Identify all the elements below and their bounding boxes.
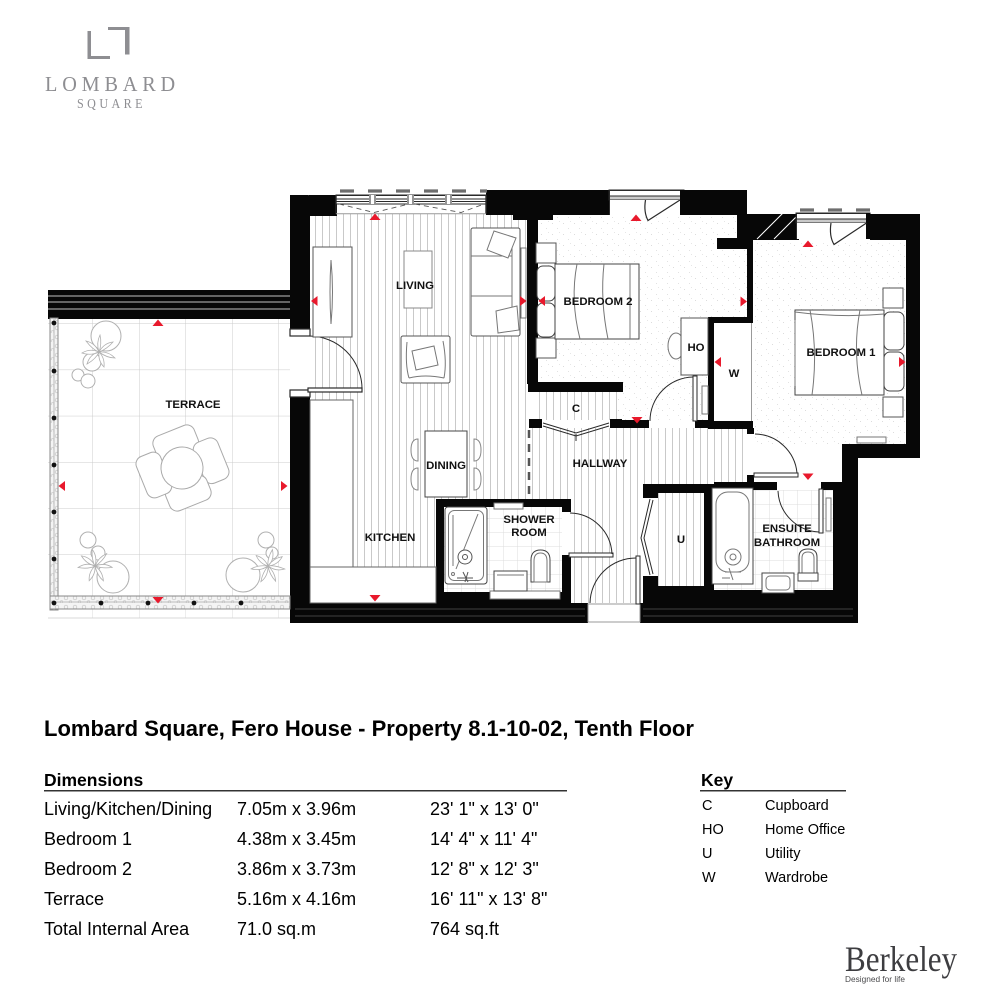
svg-text:LIVING: LIVING xyxy=(396,280,434,292)
svg-text:W: W xyxy=(702,870,716,886)
svg-text:BEDROOM 1: BEDROOM 1 xyxy=(807,347,877,359)
svg-text:SHOWER: SHOWER xyxy=(503,514,554,526)
svg-text:LOMBARD: LOMBARD xyxy=(45,72,180,96)
svg-text:BEDROOM 2: BEDROOM 2 xyxy=(564,296,633,308)
svg-text:23' 1" x 13' 0": 23' 1" x 13' 0" xyxy=(430,799,539,819)
svg-text:7.05m x 3.96m: 7.05m x 3.96m xyxy=(237,799,356,819)
svg-text:Terrace: Terrace xyxy=(44,889,104,909)
svg-text:5.16m x 4.16m: 5.16m x 4.16m xyxy=(237,889,356,909)
svg-text:16' 11" x 13' 8": 16' 11" x 13' 8" xyxy=(430,889,547,909)
svg-text:HALLWAY: HALLWAY xyxy=(573,458,628,470)
svg-text:U: U xyxy=(677,534,685,546)
svg-text:Living/Kitchen/Dining: Living/Kitchen/Dining xyxy=(44,799,212,819)
svg-text:Bedroom 2: Bedroom 2 xyxy=(44,859,132,879)
svg-text:BATHROOM: BATHROOM xyxy=(754,537,820,549)
svg-text:W: W xyxy=(729,368,740,380)
svg-text:ENSUITE: ENSUITE xyxy=(762,523,812,535)
svg-text:Berkeley: Berkeley xyxy=(845,939,957,979)
svg-text:71.0 sq.m: 71.0 sq.m xyxy=(237,919,316,939)
svg-text:Lombard Square, Fero House - P: Lombard Square, Fero House - Property 8.… xyxy=(44,716,694,741)
svg-text:Bedroom 1: Bedroom 1 xyxy=(44,829,132,849)
svg-text:HO: HO xyxy=(702,822,724,838)
svg-text:Dimensions: Dimensions xyxy=(44,770,143,790)
svg-text:C: C xyxy=(702,798,712,814)
svg-text:Key: Key xyxy=(701,770,733,790)
svg-text:SQUARE: SQUARE xyxy=(77,97,146,112)
svg-text:TERRACE: TERRACE xyxy=(165,399,220,411)
svg-text:Utility: Utility xyxy=(765,846,801,862)
svg-text:3.86m x 3.73m: 3.86m x 3.73m xyxy=(237,859,356,879)
svg-text:Total Internal Area: Total Internal Area xyxy=(44,919,190,939)
svg-text:U: U xyxy=(702,846,712,862)
svg-text:KITCHEN: KITCHEN xyxy=(365,532,416,544)
svg-text:Cupboard: Cupboard xyxy=(765,798,829,814)
svg-text:C: C xyxy=(572,403,580,415)
svg-text:764 sq.ft: 764 sq.ft xyxy=(430,919,499,939)
svg-text:Home Office: Home Office xyxy=(765,822,845,838)
svg-text:Wardrobe: Wardrobe xyxy=(765,870,828,886)
svg-text:Designed for life: Designed for life xyxy=(845,974,905,984)
svg-text:14' 4" x 11' 4": 14' 4" x 11' 4" xyxy=(430,829,537,849)
svg-text:ROOM: ROOM xyxy=(511,527,546,539)
svg-text:DINING: DINING xyxy=(426,460,466,472)
svg-text:12' 8" x 12' 3": 12' 8" x 12' 3" xyxy=(430,859,539,879)
svg-text:HO: HO xyxy=(687,342,704,354)
svg-text:4.38m x 3.45m: 4.38m x 3.45m xyxy=(237,829,356,849)
